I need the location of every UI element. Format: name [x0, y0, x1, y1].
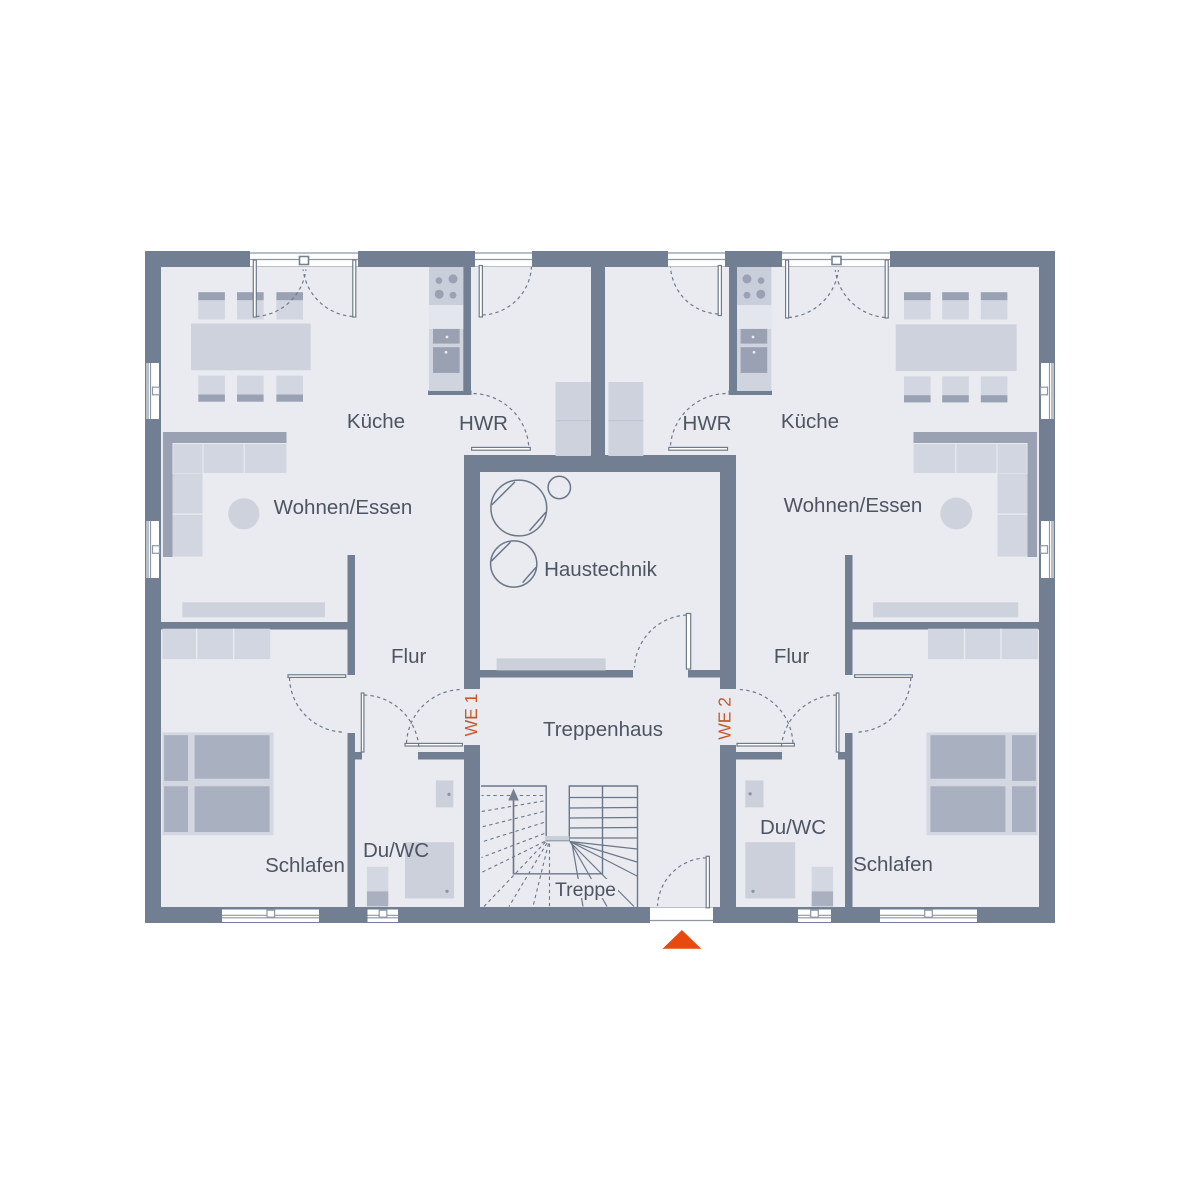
- svg-text:Schlafen: Schlafen: [853, 853, 933, 876]
- svg-text:Flur: Flur: [391, 645, 426, 668]
- svg-text:Treppenhaus: Treppenhaus: [543, 718, 663, 741]
- svg-text:Treppe: Treppe: [555, 879, 616, 901]
- svg-text:Du/WC: Du/WC: [760, 816, 826, 839]
- svg-text:Küche: Küche: [781, 410, 839, 433]
- svg-text:WE 1: WE 1: [461, 694, 481, 737]
- svg-text:Schlafen: Schlafen: [265, 854, 345, 877]
- svg-text:Flur: Flur: [774, 645, 809, 668]
- svg-text:Küche: Küche: [347, 410, 405, 433]
- svg-text:Wohnen/Essen: Wohnen/Essen: [274, 496, 413, 519]
- svg-text:HWR: HWR: [683, 412, 732, 435]
- svg-text:HWR: HWR: [459, 412, 508, 435]
- svg-text:WE 2: WE 2: [714, 697, 734, 740]
- svg-text:Du/WC: Du/WC: [363, 839, 429, 862]
- svg-text:Haustechnik: Haustechnik: [544, 558, 658, 581]
- svg-text:Wohnen/Essen: Wohnen/Essen: [784, 494, 923, 517]
